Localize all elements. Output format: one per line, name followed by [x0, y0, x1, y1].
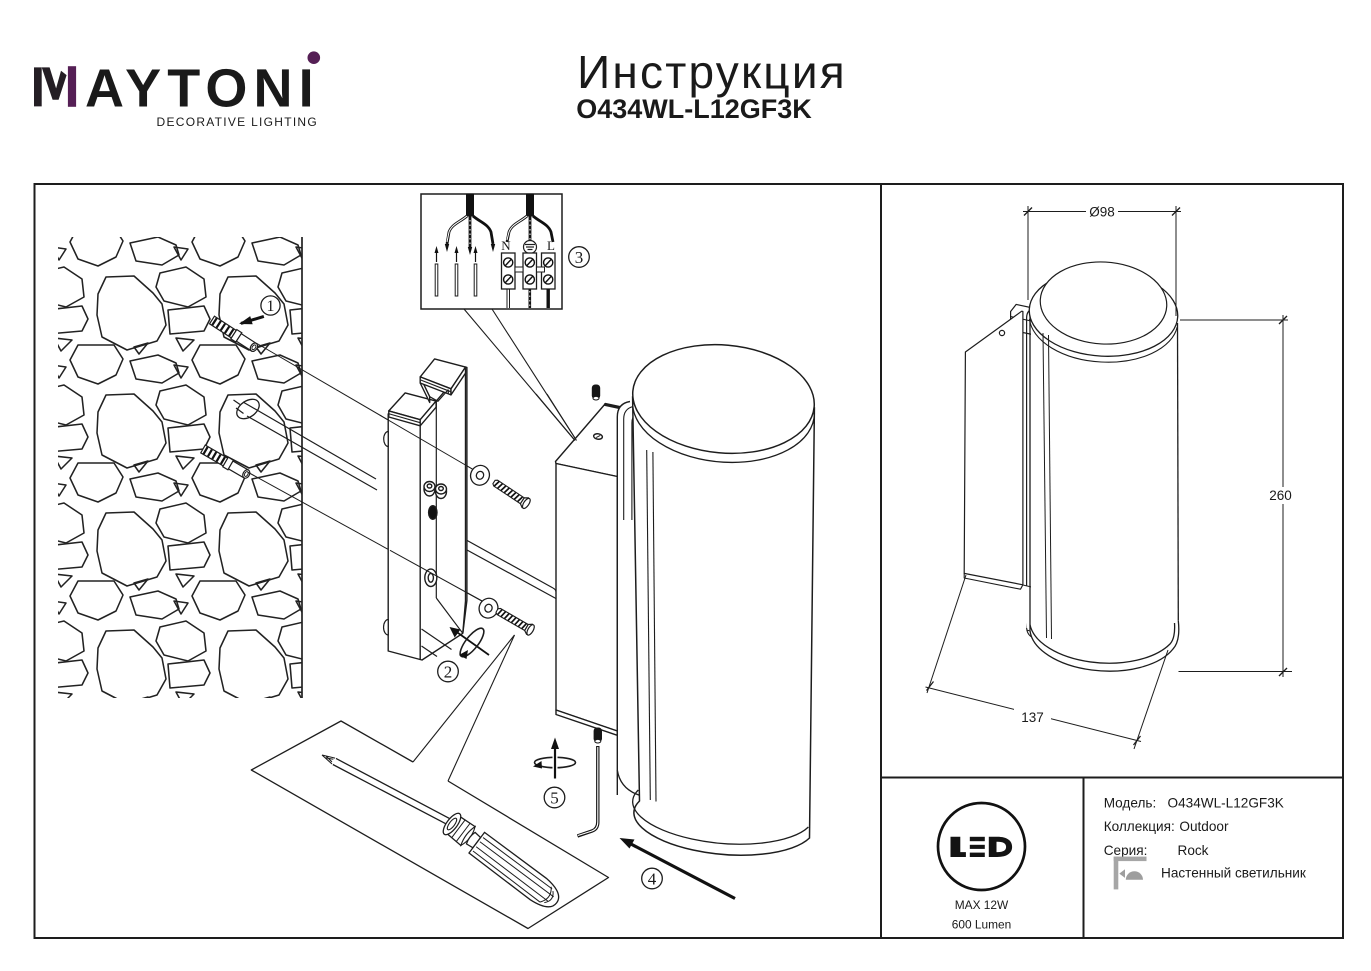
svg-text:Ø98: Ø98: [1089, 205, 1115, 220]
svg-text:Коллекция:: Коллекция:: [1104, 819, 1175, 834]
svg-text:2: 2: [444, 663, 453, 682]
svg-text:DECORATIVE LIGHTING: DECORATIVE LIGHTING: [157, 115, 318, 129]
svg-text:5: 5: [550, 789, 559, 808]
svg-text:N: N: [501, 238, 511, 253]
svg-text:260: 260: [1269, 488, 1292, 503]
svg-text:1: 1: [267, 298, 275, 315]
svg-text:MAX 12W: MAX 12W: [955, 898, 1009, 912]
svg-text:O434WL-L12GF3K: O434WL-L12GF3K: [576, 94, 812, 124]
svg-text:Rock: Rock: [1178, 843, 1209, 858]
svg-text:Инструкция: Инструкция: [577, 46, 847, 98]
svg-text:137: 137: [1021, 710, 1044, 725]
svg-text:L: L: [547, 238, 555, 253]
svg-text:4: 4: [648, 870, 657, 889]
svg-text:Модель:: Модель:: [1104, 796, 1157, 811]
svg-text:3: 3: [575, 248, 584, 267]
svg-text:O434WL-L12GF3K: O434WL-L12GF3K: [1168, 796, 1284, 811]
svg-text:Outdoor: Outdoor: [1179, 819, 1229, 834]
svg-text:AYTONI: AYTONI: [85, 58, 320, 118]
svg-text:600 Lumen: 600 Lumen: [952, 918, 1012, 932]
svg-text:Серия:: Серия:: [1104, 843, 1148, 858]
svg-text:Настенный светильник: Настенный светильник: [1161, 866, 1307, 881]
